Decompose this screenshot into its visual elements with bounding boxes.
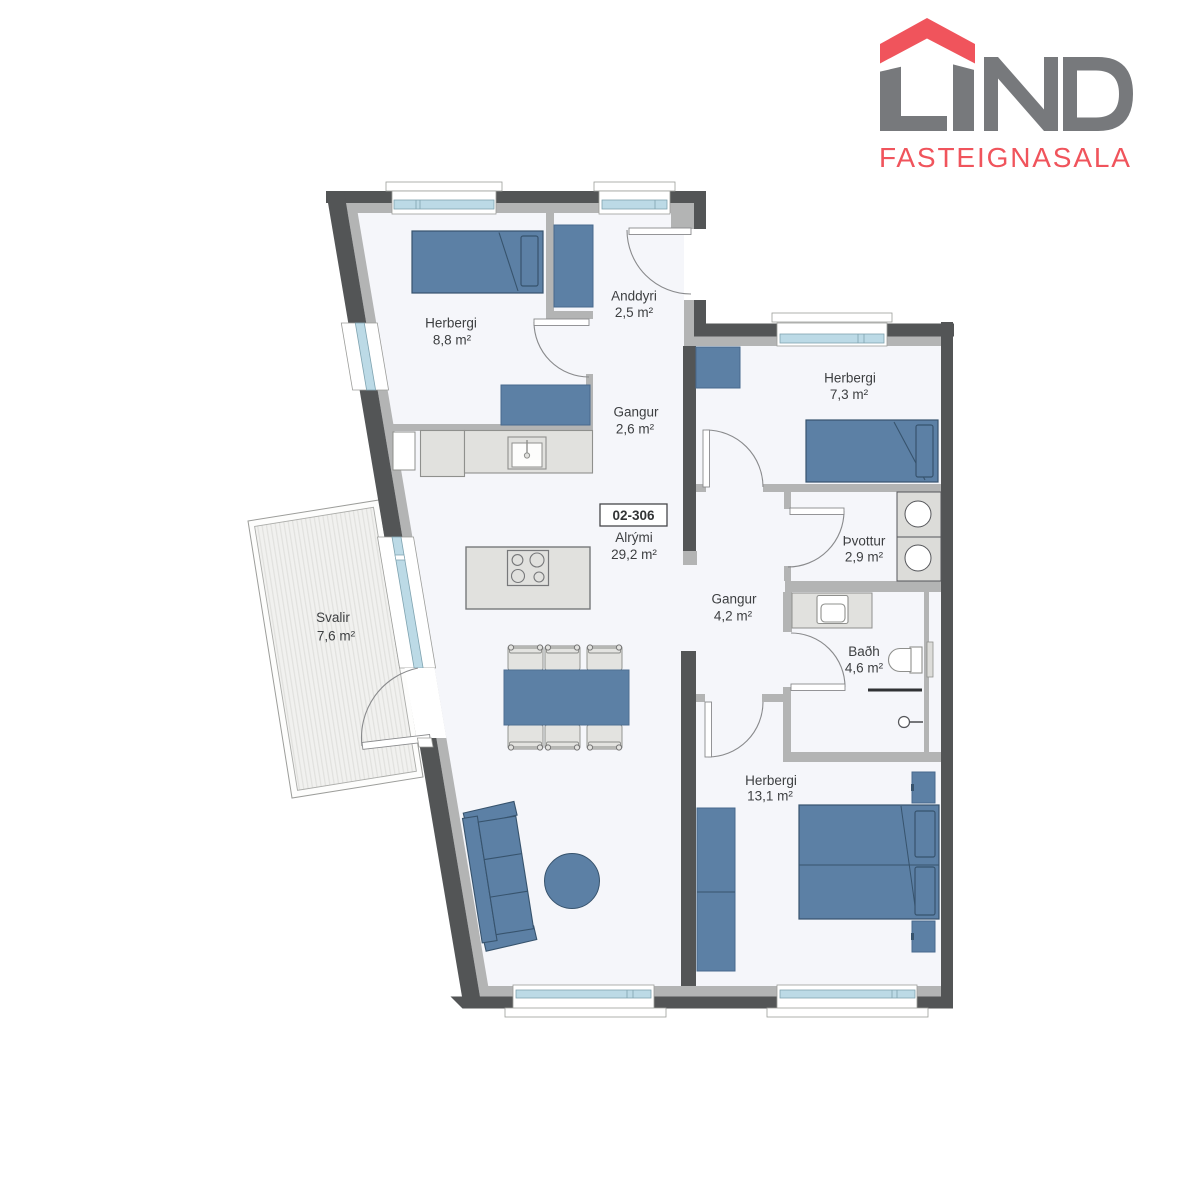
- svg-text:8,8 m²: 8,8 m²: [433, 333, 472, 348]
- svg-text:Herbergi: Herbergi: [824, 371, 876, 386]
- svg-text:Herbergi: Herbergi: [425, 316, 477, 331]
- svg-text:Gangur: Gangur: [711, 592, 757, 607]
- svg-text:Þvottur: Þvottur: [843, 534, 886, 549]
- svg-text:Alrými: Alrými: [615, 530, 653, 545]
- svg-text:Gangur: Gangur: [613, 405, 659, 420]
- svg-text:13,1 m²: 13,1 m²: [747, 789, 793, 804]
- svg-text:4,6 m²: 4,6 m²: [845, 661, 884, 676]
- svg-text:02-306: 02-306: [612, 508, 655, 523]
- svg-text:FASTEIGNASALA: FASTEIGNASALA: [879, 142, 1132, 173]
- svg-text:2,6 m²: 2,6 m²: [616, 422, 655, 437]
- svg-text:4,2 m²: 4,2 m²: [714, 609, 753, 624]
- svg-text:2,9 m²: 2,9 m²: [845, 550, 884, 565]
- svg-text:29,2 m²: 29,2 m²: [611, 547, 657, 562]
- svg-text:Svalir: Svalir: [316, 610, 350, 625]
- svg-text:Baðh: Baðh: [848, 644, 880, 659]
- svg-text:2,5 m²: 2,5 m²: [615, 305, 654, 320]
- svg-text:Herbergi: Herbergi: [745, 773, 797, 788]
- svg-text:7,6 m²: 7,6 m²: [317, 629, 356, 644]
- svg-text:7,3 m²: 7,3 m²: [830, 387, 869, 402]
- svg-text:Anddyri: Anddyri: [611, 289, 657, 304]
